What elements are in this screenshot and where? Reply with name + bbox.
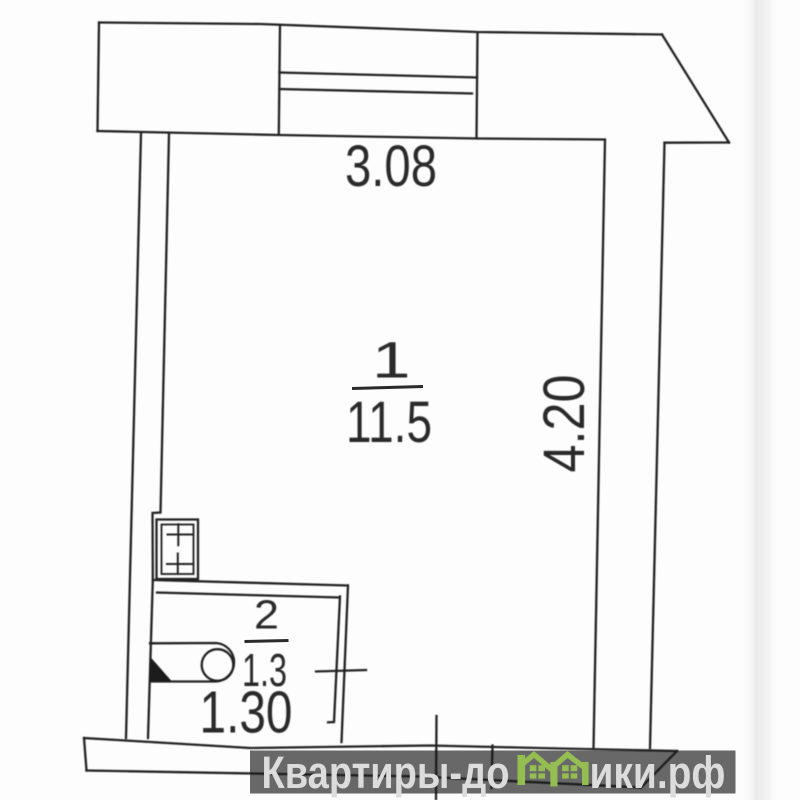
svg-text:Квартиры-до: Квартиры-до (262, 747, 510, 798)
svg-text:2: 2 (254, 592, 279, 638)
svg-text:4.20: 4.20 (532, 375, 597, 473)
svg-text:ики.рф: ики.рф (590, 747, 726, 798)
svg-text:1: 1 (372, 332, 411, 389)
svg-text:11.5: 11.5 (346, 390, 432, 455)
svg-text:1.30: 1.30 (200, 680, 293, 746)
svg-text:3.08: 3.08 (345, 134, 437, 199)
